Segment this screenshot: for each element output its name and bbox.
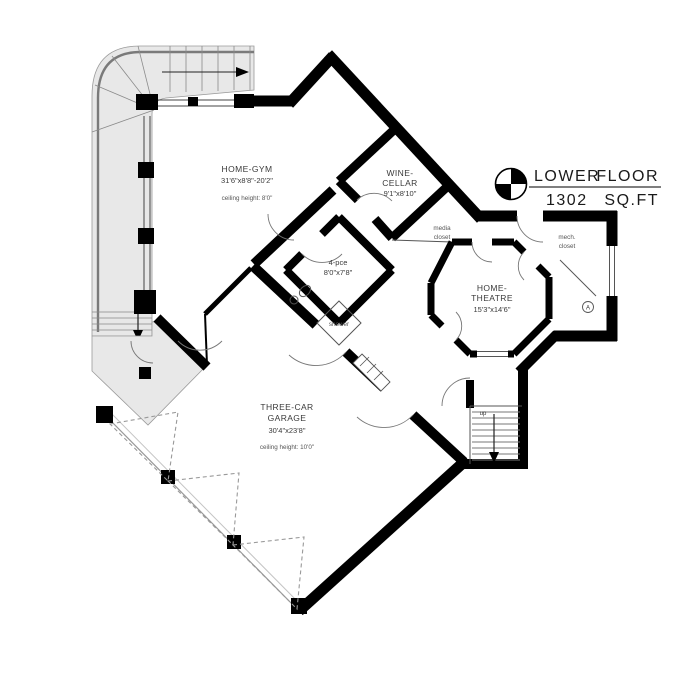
stair-direction-arrow-down-icon (489, 414, 499, 463)
door-swing (456, 312, 462, 340)
post (188, 97, 198, 106)
home-theatre-name-1: HOME- (477, 283, 507, 293)
floor-plan-page: A (0, 0, 700, 700)
door-swing (289, 352, 346, 366)
garage-nw-wall (205, 268, 251, 365)
post (138, 228, 154, 244)
terrace-walkway (92, 46, 254, 341)
home-gym-note: ceiling height: 8'0" (222, 195, 273, 202)
garage-dims: 30'4"x23'8" (269, 426, 306, 435)
home-theatre-name-2: THEATRE (471, 293, 513, 303)
post (139, 367, 151, 379)
theatre-door-swings (456, 216, 543, 340)
post (138, 162, 154, 178)
garage-name-1: THREE-CAR (260, 402, 313, 412)
post (134, 290, 156, 314)
door-swing (442, 378, 470, 406)
garage-sw-edge (96, 406, 307, 614)
post (161, 470, 175, 484)
title-floor: FLOOR (596, 168, 659, 185)
bath-name: 4-pce (329, 258, 348, 267)
mech-closet-label-1: mech. (558, 234, 575, 241)
door-tag-label: A (586, 306, 590, 312)
mech-closet-wall (560, 260, 596, 296)
door-swing (518, 252, 524, 280)
title-sqft-value: 1302 (546, 192, 588, 209)
wine-cellar-name-2: CELLAR (382, 178, 417, 188)
garage-note: ceiling height: 10'0" (260, 444, 314, 451)
garage-bay (168, 473, 239, 545)
home-gym-name: HOME-GYM (222, 164, 273, 174)
wine-cellar-name-1: WINE- (386, 168, 413, 178)
mech-closet-label-2: closet (559, 243, 576, 250)
floor-plan-drawing: A (0, 0, 700, 700)
post (136, 94, 158, 110)
garage-name-2: GARAGE (268, 413, 307, 423)
post (96, 406, 113, 423)
wine-cellar-dims: 9'1"x8'10" (384, 189, 417, 198)
title-block: LOWER FLOOR 1302 SQ.FT (496, 168, 662, 209)
media-closet-label-2: closet (434, 234, 451, 241)
north-symbol-icon (496, 169, 527, 200)
shower-label: shower (329, 321, 349, 328)
media-closet-label-1: media (433, 225, 451, 232)
home-gym-dims: 31'6"x8'8"-20'2" (221, 176, 273, 185)
door-swing (472, 242, 492, 262)
door-tag-a: A (583, 302, 594, 313)
title-sqft-unit: SQ.FT (604, 192, 659, 209)
hall-closet (353, 354, 390, 391)
home-gym-window-walls (144, 100, 234, 290)
title-lower: LOWER (534, 168, 600, 185)
door-swing (357, 415, 413, 427)
door-swing (517, 216, 543, 242)
home-theatre-dims: 15'3"x14'6" (474, 305, 511, 314)
stairs-up-label: up (480, 411, 487, 417)
bath-dims: 8'0"x7'8" (324, 268, 353, 277)
